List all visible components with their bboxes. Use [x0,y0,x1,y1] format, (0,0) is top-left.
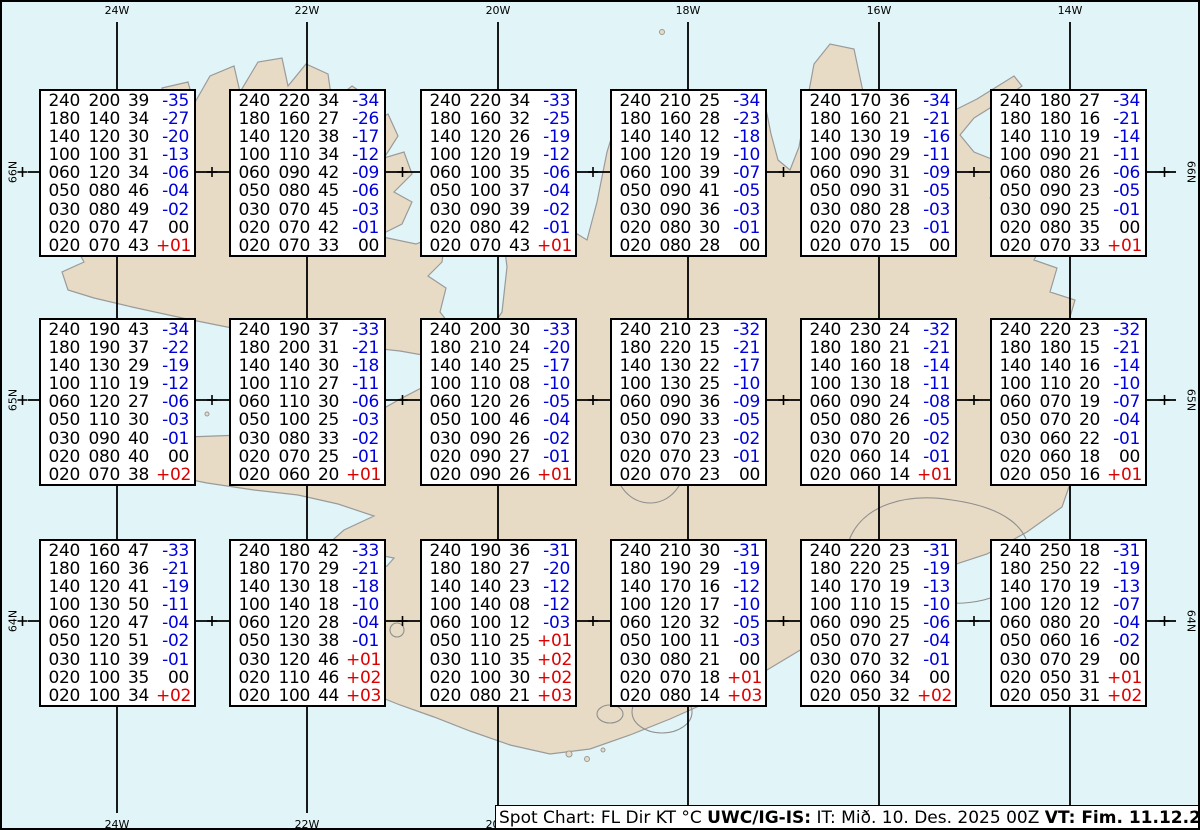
spot-row: 06009036-09 [618,393,760,411]
fl-cell: 140 [237,128,270,146]
spot-row: 14017019-13 [998,578,1140,596]
dir-cell: 220 [848,542,881,560]
dir-cell: 090 [468,466,501,484]
kt-cell: 30 [127,411,149,429]
kt-cell: 18 [888,357,910,375]
spot-row: 10009029-11 [808,146,950,164]
kt-cell: 19 [1078,128,1100,146]
temp-cell: -11 [156,596,189,614]
fl-cell: 060 [47,614,80,632]
dir-cell: 070 [468,237,501,255]
fl-cell: 050 [237,411,270,429]
spot-row: 10012012-07 [998,596,1140,614]
kt-cell: 35 [508,651,530,669]
kt-cell: 27 [888,632,910,650]
fl-cell: 050 [237,632,270,650]
kt-cell: 31 [1078,669,1100,687]
temp-cell: -04 [156,182,189,200]
fl-cell: 180 [47,339,80,357]
temp-cell: -21 [1107,110,1140,128]
dir-cell: 110 [468,651,501,669]
temp-cell: -07 [1107,393,1140,411]
fl-cell: 060 [237,164,270,182]
spot-row: 06012027-06 [47,393,189,411]
temp-cell: -10 [917,596,950,614]
temp-cell: -01 [1107,201,1140,219]
spot-chart-frame: 24W22W20W18W16W14W24W22W20W66N65N64N66N6… [0,0,1200,830]
spot-row: 02010030+02 [428,669,570,687]
spot-row: 14013019-16 [808,128,950,146]
kt-cell: 22 [698,357,720,375]
spot-box-r1c3: 24022034-3318016032-2514012026-191001201… [420,89,577,257]
temp-cell: -31 [917,542,950,560]
dir-cell: 110 [277,375,310,393]
fl-cell: 050 [47,182,80,200]
spot-row: 03007045-03 [237,201,379,219]
temp-cell: -02 [346,430,379,448]
kt-cell: 23 [698,448,720,466]
kt-cell: 46 [317,669,339,687]
kt-cell: 44 [317,687,339,705]
fl-cell: 240 [428,321,461,339]
dir-cell: 080 [87,201,120,219]
dir-cell: 210 [658,542,691,560]
spot-box-r2c4: 24021023-3218022015-2114013022-171001302… [610,318,767,486]
fl-cell: 020 [237,687,270,705]
temp-cell: -19 [727,560,760,578]
fl-cell: 180 [237,560,270,578]
kt-cell: 46 [127,182,149,200]
dir-cell: 090 [658,182,691,200]
fl-cell: 050 [428,411,461,429]
fl-cell: 020 [47,448,80,466]
fl-cell: 060 [618,614,651,632]
fl-cell: 140 [618,128,651,146]
fl-cell: 100 [47,146,80,164]
kt-cell: 12 [698,128,720,146]
spot-row: 18016028-23 [618,110,760,128]
temp-cell: -05 [917,411,950,429]
spot-row: 05009041-05 [618,182,760,200]
fl-cell: 020 [808,466,841,484]
kt-cell: 25 [508,632,530,650]
kt-cell: 34 [317,92,339,110]
temp-cell: -01 [156,430,189,448]
temp-cell: -10 [727,146,760,164]
temp-cell: -11 [917,375,950,393]
spot-row: 24021023-32 [618,321,760,339]
kt-cell: 25 [317,448,339,466]
dir-cell: 090 [848,614,881,632]
temp-cell: +03 [727,687,762,705]
kt-cell: 33 [1078,237,1100,255]
spot-row: 02011046+02 [237,669,379,687]
fl-cell: 020 [428,669,461,687]
temp-cell: -14 [1107,128,1140,146]
spot-row: 02007038+02 [47,466,189,484]
spot-row: 02008042-01 [428,219,570,237]
fl-cell: 140 [618,357,651,375]
dir-cell: 100 [658,164,691,182]
fl-cell: 050 [428,182,461,200]
dir-cell: 180 [1038,339,1071,357]
spot-row: 02008030-01 [618,219,760,237]
fl-cell: 140 [998,578,1031,596]
kt-cell: 34 [508,92,530,110]
fl-cell: 180 [998,560,1031,578]
fl-cell: 020 [237,669,270,687]
kt-cell: 39 [127,92,149,110]
temp-cell: +03 [537,687,572,705]
spot-row: 0300702900 [998,651,1140,669]
spot-row: 05009023-05 [998,182,1140,200]
dir-cell: 090 [658,201,691,219]
dir-cell: 060 [1038,430,1071,448]
temp-cell: +01 [346,466,381,484]
dir-cell: 140 [468,357,501,375]
kt-cell: 28 [698,237,720,255]
temp-cell: -06 [346,182,379,200]
kt-cell: 41 [698,182,720,200]
spot-row: 24025018-31 [998,542,1140,560]
fl-cell: 030 [808,651,841,669]
fl-cell: 020 [808,237,841,255]
temp-cell: 00 [727,237,760,255]
temp-cell: +02 [537,651,572,669]
spot-row: 18018027-20 [428,560,570,578]
kt-cell: 42 [317,219,339,237]
bottom-longitude-label: 24W [105,818,130,830]
kt-cell: 35 [1078,219,1100,237]
temp-cell: -04 [1107,614,1140,632]
spot-box-r1c5: 24017036-3418016021-2114013019-161000902… [800,89,957,257]
spot-row: 24022034-34 [237,92,379,110]
spot-row: 05008045-06 [237,182,379,200]
fl-cell: 030 [47,651,80,669]
fl-cell: 180 [618,339,651,357]
dir-cell: 070 [848,237,881,255]
spot-row: 05010037-04 [428,182,570,200]
fl-cell: 050 [47,632,80,650]
top-longitude-label: 18W [676,4,701,17]
temp-cell: -01 [346,219,379,237]
spot-row: 24019043-34 [47,321,189,339]
kt-cell: 25 [317,411,339,429]
temp-cell: -03 [917,201,950,219]
fl-cell: 100 [237,375,270,393]
fl-cell: 140 [428,578,461,596]
temp-cell: -01 [346,632,379,650]
temp-cell: -06 [346,393,379,411]
kt-cell: 15 [888,596,910,614]
temp-cell: -01 [156,651,189,669]
temp-cell: -13 [1107,578,1140,596]
kt-cell: 36 [698,201,720,219]
kt-cell: 27 [317,110,339,128]
temp-cell: -34 [727,92,760,110]
fl-cell: 180 [237,339,270,357]
spot-row: 05011025+01 [428,632,570,650]
fl-cell: 020 [428,219,461,237]
dir-cell: 050 [848,687,881,705]
dir-cell: 180 [277,542,310,560]
kt-cell: 36 [888,92,910,110]
kt-cell: 33 [317,430,339,448]
temp-cell: -17 [537,357,570,375]
fl-cell: 180 [47,110,80,128]
spot-row: 14014030-18 [237,357,379,375]
temp-cell: -02 [917,430,950,448]
fl-cell: 060 [237,393,270,411]
dir-cell: 220 [658,339,691,357]
temp-cell: -10 [1107,375,1140,393]
temp-cell: -07 [727,164,760,182]
spot-row: 24022023-31 [808,542,950,560]
temp-cell: 00 [156,219,189,237]
spot-box-r3c2: 24018042-3318017029-2114013018-181001401… [229,539,386,707]
kt-cell: 39 [508,201,530,219]
temp-cell: -19 [1107,560,1140,578]
kt-cell: 27 [127,393,149,411]
fl-cell: 180 [998,339,1031,357]
dir-cell: 110 [277,146,310,164]
fl-cell: 180 [618,560,651,578]
fl-cell: 030 [618,201,651,219]
kt-cell: 08 [508,596,530,614]
temp-cell: -05 [727,614,760,632]
fl-cell: 020 [618,237,651,255]
temp-cell: -18 [727,128,760,146]
kt-cell: 34 [127,110,149,128]
temp-cell: -04 [537,182,570,200]
fl-cell: 100 [808,375,841,393]
spot-row: 0200803500 [998,219,1140,237]
dir-cell: 070 [848,219,881,237]
dir-cell: 070 [87,466,120,484]
dir-cell: 220 [1038,321,1071,339]
fl-cell: 030 [808,430,841,448]
kt-cell: 37 [317,321,339,339]
spot-row: 02007023-01 [618,448,760,466]
kt-cell: 14 [698,687,720,705]
fl-cell: 020 [428,237,461,255]
temp-cell: -12 [537,146,570,164]
dir-cell: 090 [658,411,691,429]
kt-cell: 30 [508,669,530,687]
kt-cell: 34 [888,669,910,687]
spot-row: 0200702300 [618,466,760,484]
spot-row: 03008049-02 [47,201,189,219]
dir-cell: 070 [277,201,310,219]
spot-row: 03009040-01 [47,430,189,448]
fl-cell: 030 [618,430,651,448]
dir-cell: 090 [1038,201,1071,219]
kt-cell: 21 [698,651,720,669]
temp-cell: -04 [917,632,950,650]
temp-cell: +02 [1107,687,1142,705]
temp-cell: +01 [156,237,191,255]
dir-cell: 140 [468,596,501,614]
spot-row: 18016027-26 [237,110,379,128]
temp-cell: -31 [537,542,570,560]
fl-cell: 020 [998,219,1031,237]
fl-cell: 240 [237,92,270,110]
kt-cell: 32 [888,651,910,669]
dir-cell: 080 [87,448,120,466]
temp-cell: -05 [537,393,570,411]
fl-cell: 060 [998,614,1031,632]
fl-cell: 240 [808,321,841,339]
kt-cell: 31 [1078,687,1100,705]
temp-cell: -21 [917,339,950,357]
fl-cell: 180 [808,560,841,578]
temp-cell: -02 [537,201,570,219]
fl-cell: 020 [808,687,841,705]
temp-cell: +01 [1107,669,1142,687]
temp-cell: -21 [1107,339,1140,357]
fl-cell: 100 [618,146,651,164]
kt-cell: 42 [317,164,339,182]
spot-row: 03006022-01 [998,430,1140,448]
kt-cell: 39 [127,651,149,669]
fl-cell: 240 [237,321,270,339]
dir-cell: 190 [87,321,120,339]
kt-cell: 45 [317,201,339,219]
dir-cell: 120 [468,393,501,411]
kt-cell: 20 [888,430,910,448]
spot-row: 14013018-18 [237,578,379,596]
spot-row: 02007025-01 [237,448,379,466]
fl-cell: 050 [47,411,80,429]
spot-row: 06011030-06 [237,393,379,411]
fl-cell: 020 [47,669,80,687]
fl-cell: 100 [47,375,80,393]
dir-cell: 110 [1038,128,1071,146]
dir-cell: 090 [848,146,881,164]
spot-row: 0300802100 [618,651,760,669]
fl-cell: 240 [428,92,461,110]
fl-cell: 030 [237,201,270,219]
dir-cell: 140 [277,596,310,614]
temp-cell: -09 [346,164,379,182]
dir-cell: 070 [1038,393,1071,411]
dir-cell: 090 [1038,182,1071,200]
temp-cell: -10 [537,375,570,393]
spot-row: 05007020-04 [998,411,1140,429]
fl-cell: 020 [428,687,461,705]
spot-box-r1c1: 24020039-3518014034-2714012030-201001003… [39,89,196,257]
spot-row: 18025022-19 [998,560,1140,578]
temp-cell: -02 [727,430,760,448]
kt-cell: 37 [127,339,149,357]
temp-cell: -34 [1107,92,1140,110]
dir-cell: 220 [277,92,310,110]
top-longitude-label: 20W [486,4,511,17]
kt-cell: 41 [127,578,149,596]
fl-cell: 180 [428,339,461,357]
dir-cell: 110 [277,393,310,411]
temp-cell: -02 [537,430,570,448]
dir-cell: 160 [658,110,691,128]
kt-cell: 15 [888,237,910,255]
spot-row: 10012017-10 [618,596,760,614]
kt-cell: 21 [888,110,910,128]
dir-cell: 160 [87,542,120,560]
dir-cell: 120 [1038,596,1071,614]
dir-cell: 110 [87,411,120,429]
kt-cell: 16 [1078,632,1100,650]
temp-cell: -06 [156,393,189,411]
spot-row: 0200704700 [47,219,189,237]
spot-row: 24019037-33 [237,321,379,339]
fl-cell: 240 [47,542,80,560]
dir-cell: 060 [848,669,881,687]
fl-cell: 020 [47,466,80,484]
kt-cell: 29 [888,146,910,164]
spot-row: 24022034-33 [428,92,570,110]
spot-row: 14014012-18 [618,128,760,146]
fl-cell: 140 [998,357,1031,375]
kt-cell: 28 [888,201,910,219]
fl-cell: 100 [428,146,461,164]
dir-cell: 100 [87,687,120,705]
spot-row: 10011020-10 [998,375,1140,393]
kt-cell: 33 [317,237,339,255]
top-longitude-label: 24W [105,4,130,17]
caption-bold-segment: UWC/IG-IS: [707,808,811,828]
temp-cell: -33 [537,92,570,110]
fl-cell: 060 [47,393,80,411]
spot-row: 06009025-06 [808,614,950,632]
temp-cell: +02 [156,687,191,705]
temp-cell: 00 [346,237,379,255]
kt-cell: 36 [508,542,530,560]
temp-cell: -13 [156,146,189,164]
spot-row: 06010039-07 [618,164,760,182]
top-longitude-label: 16W [867,4,892,17]
spot-row: 24020039-35 [47,92,189,110]
kt-cell: 51 [127,632,149,650]
spot-row: 18018021-21 [808,339,950,357]
temp-cell: -21 [346,560,379,578]
spot-row: 18016036-21 [47,560,189,578]
kt-cell: 15 [1078,339,1100,357]
spot-row: 06010012-03 [428,614,570,632]
fl-cell: 030 [428,201,461,219]
kt-cell: 31 [888,164,910,182]
kt-cell: 31 [127,146,149,164]
dir-cell: 090 [468,448,501,466]
fl-cell: 020 [808,448,841,466]
temp-cell: -05 [727,411,760,429]
temp-cell: -23 [727,110,760,128]
dir-cell: 190 [468,542,501,560]
fl-cell: 060 [618,164,651,182]
kt-cell: 24 [888,321,910,339]
kt-cell: 14 [888,448,910,466]
dir-cell: 130 [848,375,881,393]
spot-row: 06012032-05 [618,614,760,632]
spot-box-r3c1: 24016047-3318016036-2114012041-191001305… [39,539,196,707]
kt-cell: 36 [127,560,149,578]
dir-cell: 100 [277,687,310,705]
spot-row: 10014018-10 [237,596,379,614]
fl-cell: 020 [998,669,1031,687]
dir-cell: 080 [658,237,691,255]
kt-cell: 27 [508,448,530,466]
temp-cell: -05 [727,182,760,200]
kt-cell: 25 [698,92,720,110]
